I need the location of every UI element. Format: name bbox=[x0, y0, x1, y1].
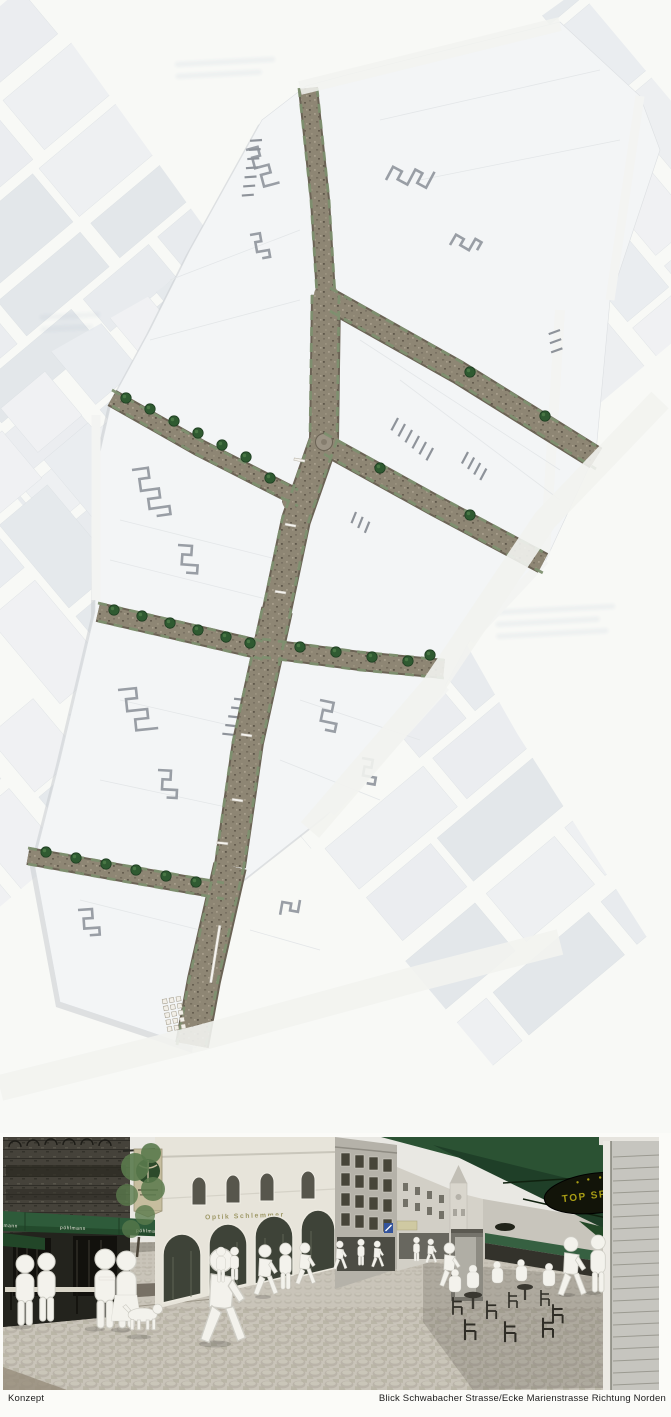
awning-label-1: pöhlmann bbox=[3, 1223, 18, 1230]
rendering-svg: pöhlmann pöhlmann pöhlmann Optik Schlemm… bbox=[3, 1137, 659, 1390]
beige-sign bbox=[397, 1221, 417, 1230]
street-view-rendering: pöhlmann pöhlmann pöhlmann Optik Schlemm… bbox=[3, 1137, 659, 1390]
paneled-pillar-building bbox=[599, 1137, 659, 1390]
waiter-tray bbox=[99, 1277, 115, 1280]
site-plan-svg bbox=[0, 0, 671, 1133]
caption-row: Konzept Blick Schwabacher Strasse/Ecke M… bbox=[0, 1392, 671, 1408]
caption-left: Konzept bbox=[8, 1393, 44, 1404]
caption-right: Blick Schwabacher Strasse/Ecke Marienstr… bbox=[379, 1393, 666, 1404]
junction-f bbox=[212, 870, 240, 898]
scanned-document-page: pöhlmann pöhlmann pöhlmann Optik Schlemm… bbox=[0, 0, 671, 1417]
awning-label-2: pöhlmann bbox=[60, 1225, 86, 1232]
site-plan bbox=[0, 0, 671, 1133]
